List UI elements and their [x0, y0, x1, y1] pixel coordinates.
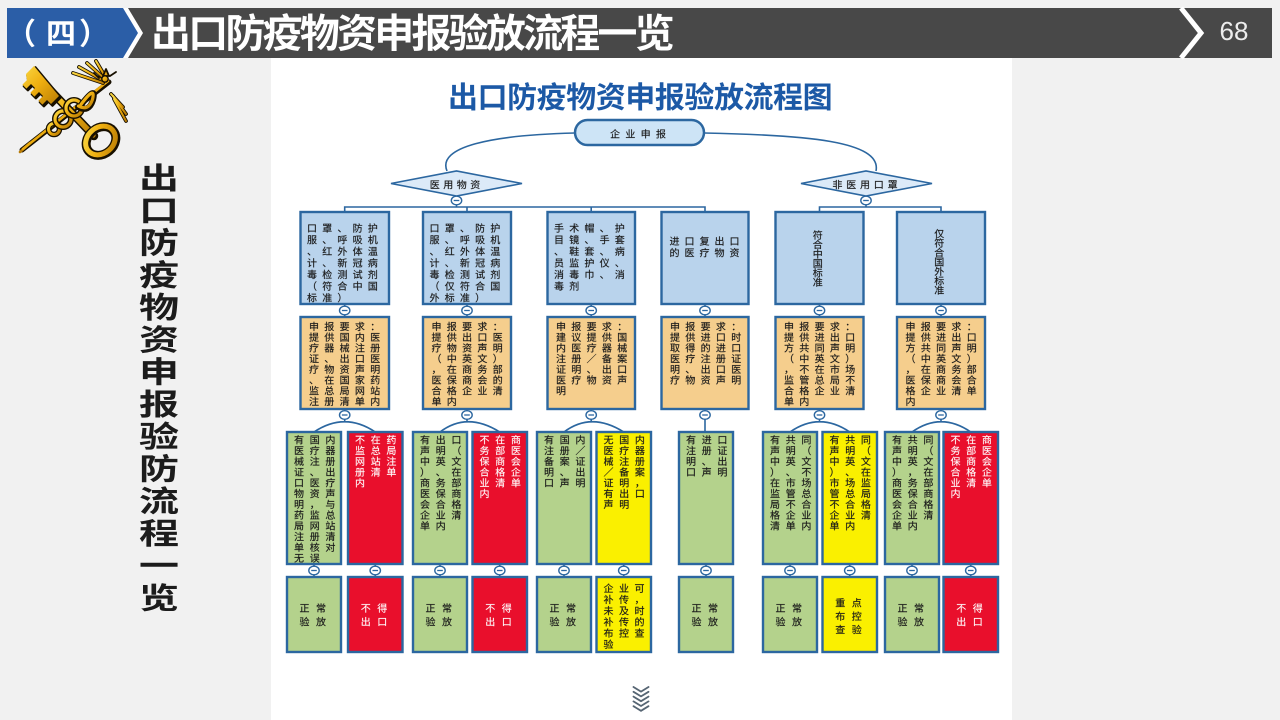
svg-text:68: 68: [1220, 16, 1249, 46]
